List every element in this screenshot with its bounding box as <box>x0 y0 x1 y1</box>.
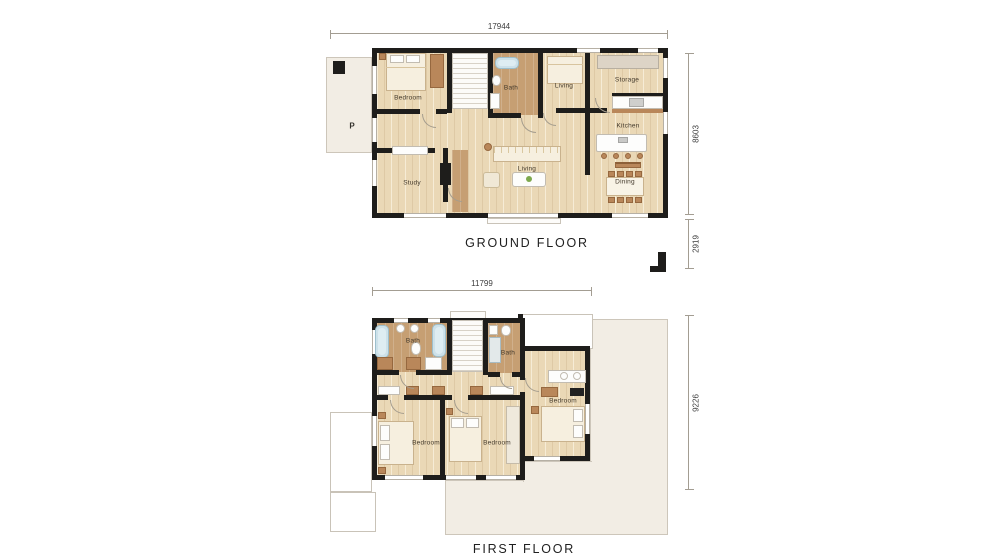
pillow <box>380 425 390 441</box>
first-floor-title: FIRST FLOOR <box>473 542 575 556</box>
sink <box>573 372 581 380</box>
wall <box>523 346 590 351</box>
window <box>428 318 440 323</box>
closet <box>432 386 445 395</box>
dimension-first-width: 11799 <box>372 290 592 291</box>
roof-outline <box>330 492 376 532</box>
dimension-first-height: 9226 <box>688 315 689 490</box>
floor-plan-sheet: 17944 8603 2919 P <box>0 0 1000 560</box>
bath-cabinet <box>406 357 421 370</box>
dimension-tick <box>372 287 373 296</box>
room-label-bedroom-mid: Bedroom <box>483 440 511 447</box>
nightstand <box>531 406 539 414</box>
room-label-bath-left: Bath <box>406 338 420 345</box>
pillow <box>573 409 583 422</box>
dimension-text: 9226 <box>691 392 700 414</box>
bathtub <box>432 324 446 357</box>
dimension-tick <box>591 287 592 296</box>
window <box>385 475 423 480</box>
tv-unit <box>570 388 584 396</box>
wall <box>440 398 445 480</box>
room-label-bedroom-left: Bedroom <box>412 440 440 447</box>
toilet <box>501 325 511 336</box>
terrace <box>445 480 591 535</box>
window <box>394 318 408 323</box>
sink <box>560 372 568 380</box>
wall <box>377 370 399 375</box>
wall <box>488 372 500 377</box>
pillow <box>380 444 390 460</box>
bathtub <box>375 325 389 358</box>
pillow <box>451 418 464 428</box>
sink <box>396 324 405 333</box>
wall <box>483 318 488 375</box>
window <box>534 456 560 461</box>
pillow <box>573 425 583 438</box>
window <box>372 416 377 446</box>
dimension-tick <box>685 489 694 490</box>
room-label-bedroom-right: Bedroom <box>549 398 577 405</box>
staircase <box>452 320 483 372</box>
window <box>486 475 516 480</box>
wall <box>447 318 452 375</box>
sink <box>410 324 419 333</box>
shower <box>425 357 442 370</box>
wall <box>468 395 523 400</box>
wall <box>512 372 520 377</box>
wall <box>520 318 525 380</box>
nightstand <box>378 467 386 474</box>
first-floor-plan: 11799 9226 <box>0 0 1000 560</box>
closet <box>378 386 400 395</box>
nightstand <box>378 412 386 419</box>
wall <box>416 370 447 375</box>
terrace-step <box>523 461 592 482</box>
pillow <box>466 418 479 428</box>
dimension-text: 11799 <box>468 279 496 288</box>
void-open-area <box>521 314 593 349</box>
wardrobe <box>506 406 520 464</box>
wall <box>377 395 388 400</box>
dresser <box>541 387 558 397</box>
nightstand <box>446 408 453 415</box>
dimension-tick <box>685 315 694 316</box>
window <box>585 404 590 434</box>
shower <box>489 337 501 363</box>
terrace <box>590 319 668 535</box>
closet <box>470 386 483 395</box>
wall <box>520 392 525 480</box>
window <box>446 475 476 480</box>
washer <box>489 325 498 335</box>
room-label-bath-mid: Bath <box>501 350 515 357</box>
roof-outline <box>330 412 372 492</box>
bath-cabinet <box>377 357 393 370</box>
